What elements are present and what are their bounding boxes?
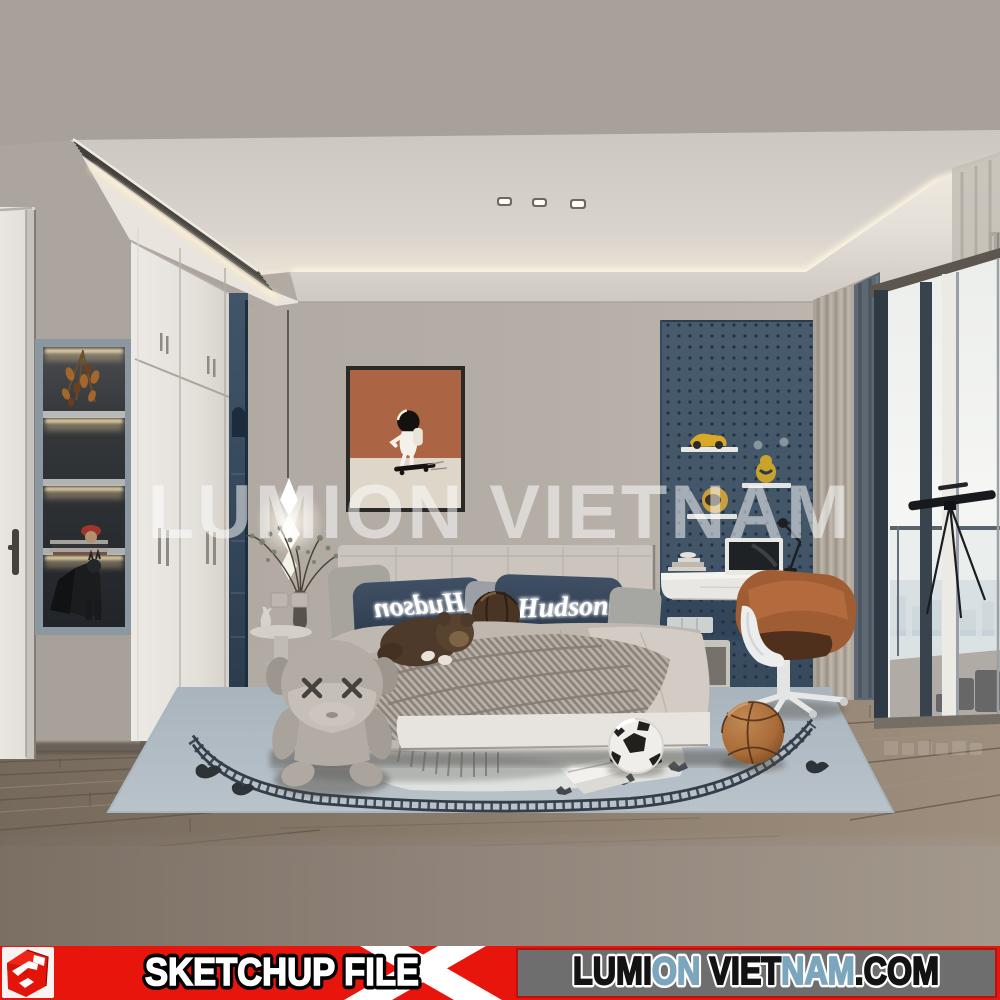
svg-text:SKETCHUP FILE: SKETCHUP FILE	[145, 951, 419, 994]
svg-text:Hudson: Hudson	[515, 590, 609, 624]
svg-text:LUMION VIETNAM: LUMION VIETNAM	[148, 470, 853, 555]
svg-text:LUMION VIETNAM.COM: LUMION VIETNAM.COM	[573, 950, 939, 993]
